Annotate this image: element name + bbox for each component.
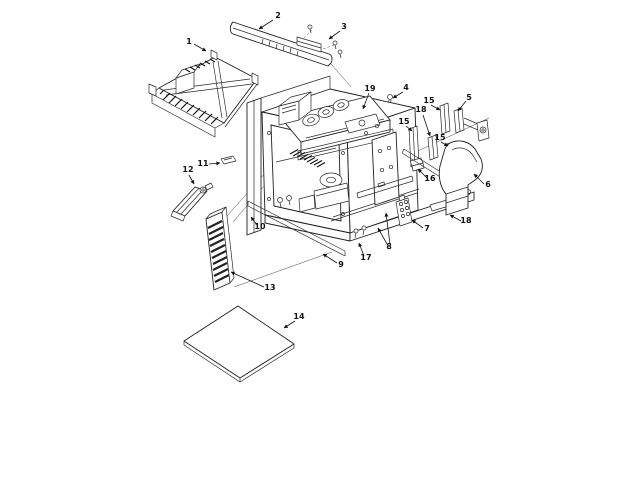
callout-15c: 15 [434, 133, 446, 142]
callout-3: 3 [341, 22, 347, 31]
part-duct-bracket-15a [440, 103, 450, 134]
callout-4: 4 [403, 83, 409, 92]
callout-16: 16 [424, 174, 436, 183]
callout-12: 12 [182, 165, 193, 174]
callout-6: 6 [485, 180, 491, 189]
callout-18a: 18 [415, 105, 427, 114]
callout-2: 2 [275, 11, 281, 20]
diagram-canvas: 1 2 3 4 5 6 7 8 9 10 11 12 13 14 15 15 1… [0, 0, 640, 480]
right-partition-panel [372, 132, 399, 205]
callout-9: 9 [338, 260, 344, 269]
callout-18b: 18 [460, 216, 472, 225]
callout-7: 7 [424, 224, 430, 233]
callout-15a: 15 [423, 96, 435, 105]
callout-1: 1 [186, 37, 192, 46]
callout-5: 5 [466, 93, 472, 102]
callout-17: 17 [360, 253, 371, 262]
callout-8: 8 [386, 242, 392, 251]
callout-11: 11 [197, 159, 209, 168]
callout-14: 14 [293, 312, 305, 321]
background [0, 0, 640, 480]
exploded-view-diagram: 1 2 3 4 5 6 7 8 9 10 11 12 13 14 15 15 1… [0, 0, 640, 480]
callout-19: 19 [364, 84, 376, 93]
callout-15b: 15 [398, 117, 410, 126]
callout-10: 10 [254, 222, 266, 231]
callout-13: 13 [264, 283, 275, 292]
